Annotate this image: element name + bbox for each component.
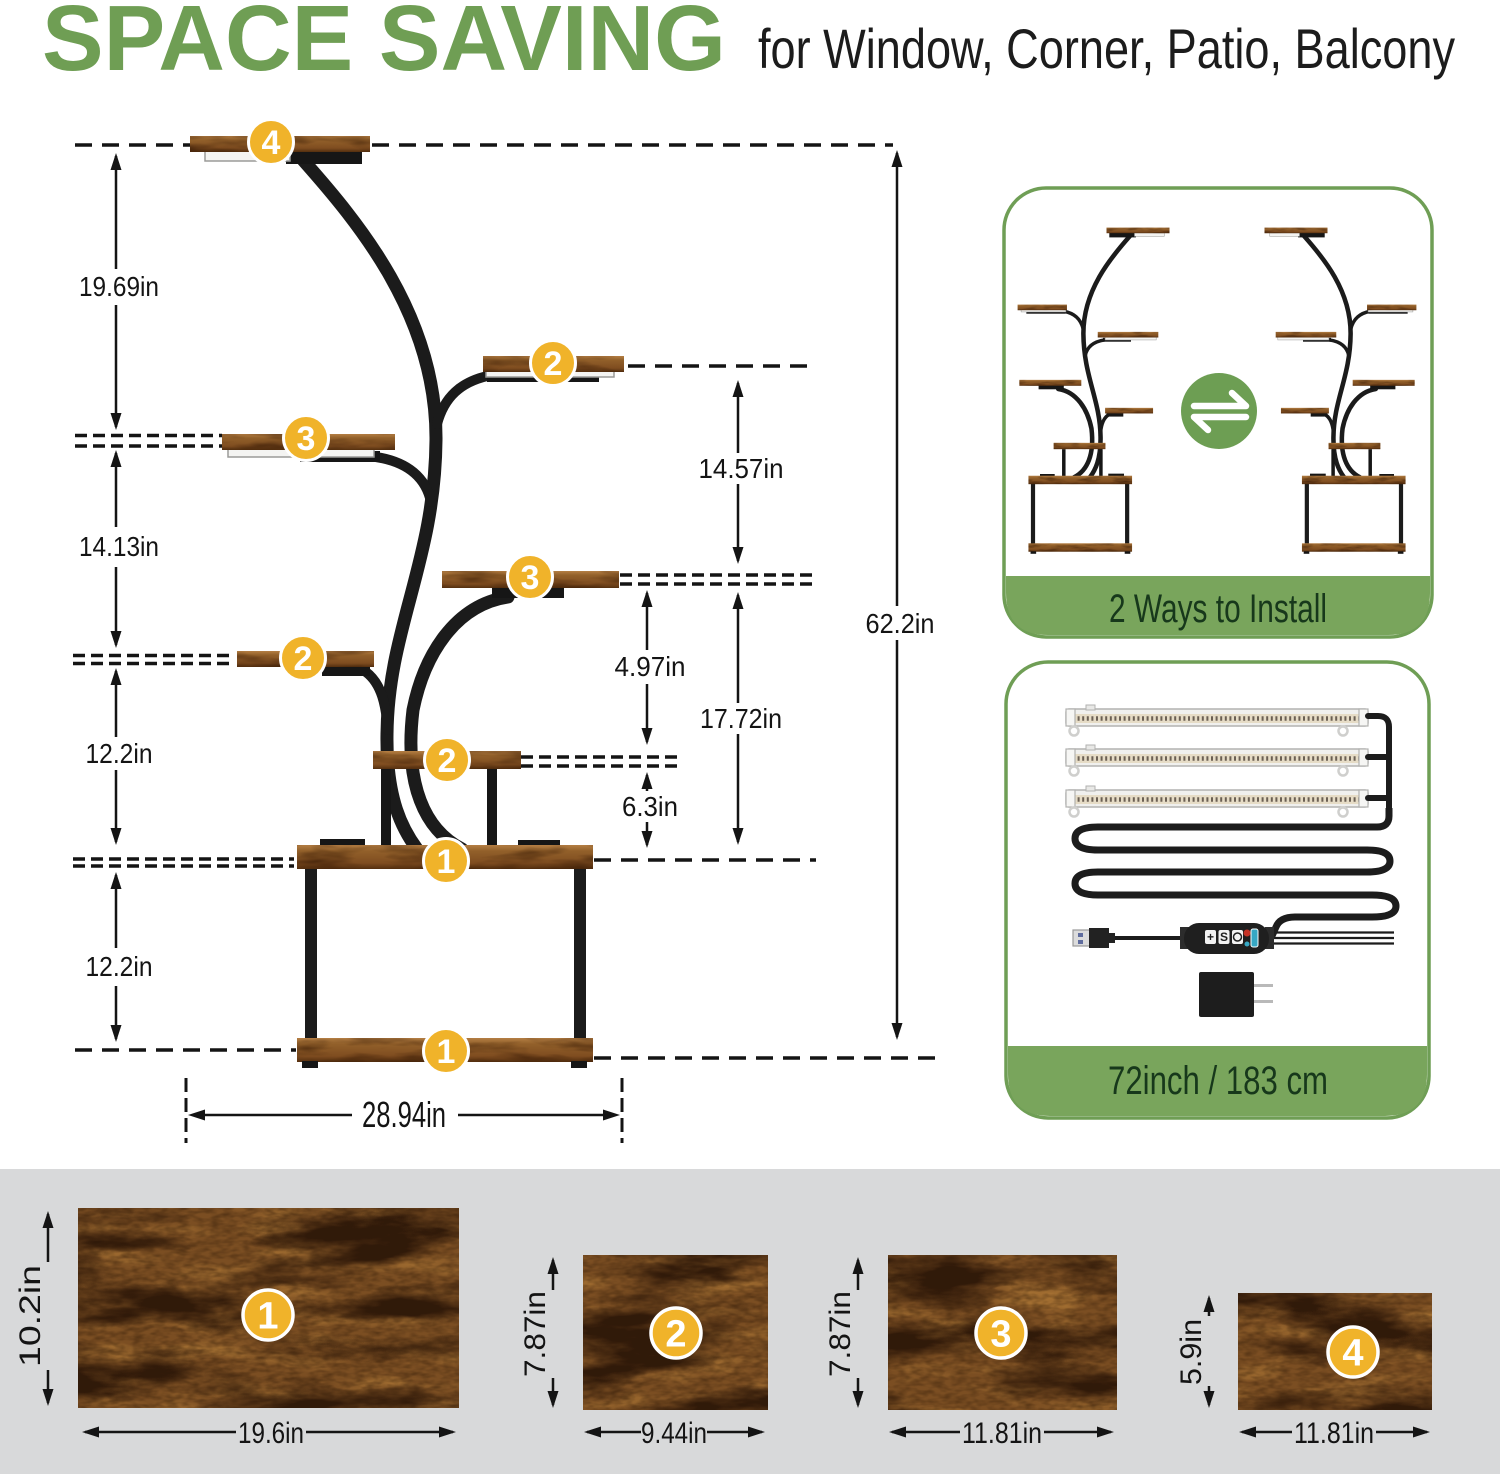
svg-text:2 Ways to Install: 2 Ways to Install bbox=[1109, 587, 1327, 631]
svg-text:5.9in: 5.9in bbox=[1175, 1319, 1208, 1385]
svg-text:6.3in: 6.3in bbox=[622, 791, 678, 822]
svg-text:4: 4 bbox=[1342, 1333, 1363, 1375]
svg-text:1: 1 bbox=[437, 843, 456, 881]
svg-text:1: 1 bbox=[437, 1033, 456, 1071]
svg-text:for Window, Corner, Patio, Bal: for Window, Corner, Patio, Balcony bbox=[758, 17, 1455, 80]
svg-text:1: 1 bbox=[257, 1296, 278, 1338]
svg-text:62.2in: 62.2in bbox=[866, 608, 935, 639]
svg-text:4.97in: 4.97in bbox=[615, 651, 686, 682]
svg-text:19.6in: 19.6in bbox=[238, 1417, 304, 1450]
svg-text:7.87in: 7.87in bbox=[519, 1291, 552, 1377]
svg-text:2: 2 bbox=[665, 1314, 686, 1356]
svg-text:3: 3 bbox=[297, 420, 316, 458]
svg-text:12.2in: 12.2in bbox=[86, 951, 153, 982]
svg-text:S: S bbox=[1220, 930, 1228, 944]
svg-text:4: 4 bbox=[262, 124, 281, 162]
svg-text:3: 3 bbox=[990, 1314, 1011, 1356]
svg-text:28.94in: 28.94in bbox=[362, 1094, 446, 1135]
svg-text:3: 3 bbox=[521, 559, 540, 597]
svg-text:11.81in: 11.81in bbox=[962, 1417, 1042, 1450]
svg-text:72inch / 183 cm: 72inch / 183 cm bbox=[1108, 1059, 1328, 1103]
svg-text:SPACE SAVING: SPACE SAVING bbox=[42, 0, 726, 90]
svg-text:10.2in: 10.2in bbox=[14, 1265, 47, 1367]
svg-text:11.81in: 11.81in bbox=[1294, 1417, 1374, 1450]
svg-text:2: 2 bbox=[438, 742, 457, 780]
svg-text:2: 2 bbox=[294, 640, 313, 678]
svg-text:+: + bbox=[1207, 930, 1214, 944]
svg-text:9.44in: 9.44in bbox=[641, 1417, 707, 1450]
svg-text:12.2in: 12.2in bbox=[86, 738, 153, 769]
svg-text:7.87in: 7.87in bbox=[824, 1291, 857, 1377]
svg-text:2: 2 bbox=[544, 345, 563, 383]
svg-text:14.57in: 14.57in bbox=[699, 453, 784, 484]
svg-text:17.72in: 17.72in bbox=[700, 703, 782, 734]
svg-text:19.69in: 19.69in bbox=[79, 271, 159, 302]
svg-text:14.13in: 14.13in bbox=[79, 531, 159, 562]
